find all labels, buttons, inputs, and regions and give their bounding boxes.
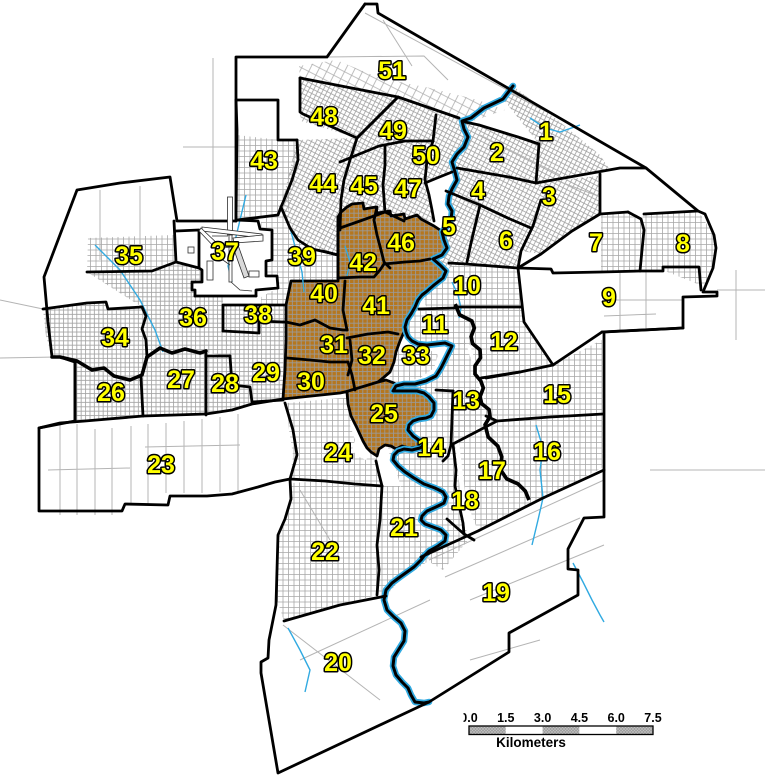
- svg-text:17: 17: [478, 457, 506, 485]
- svg-text:9: 9: [602, 284, 616, 312]
- svg-text:38: 38: [244, 301, 272, 329]
- svg-text:27: 27: [167, 366, 195, 394]
- svg-text:24: 24: [324, 439, 352, 467]
- svg-text:35: 35: [115, 242, 143, 270]
- svg-text:40: 40: [310, 280, 338, 308]
- svg-text:6.0: 6.0: [608, 711, 625, 725]
- svg-text:7.5: 7.5: [644, 711, 661, 725]
- svg-text:4.5: 4.5: [571, 711, 588, 725]
- svg-text:13: 13: [452, 387, 480, 415]
- svg-text:15: 15: [543, 381, 571, 409]
- svg-text:5: 5: [442, 213, 456, 241]
- svg-text:20: 20: [324, 649, 352, 677]
- svg-text:4: 4: [471, 177, 485, 205]
- svg-text:43: 43: [250, 147, 278, 175]
- svg-text:26: 26: [97, 379, 125, 407]
- svg-text:49: 49: [379, 117, 407, 145]
- svg-text:10: 10: [453, 272, 481, 300]
- svg-text:46: 46: [387, 229, 415, 257]
- svg-text:36: 36: [179, 304, 207, 332]
- svg-text:8: 8: [676, 230, 690, 258]
- svg-text:28: 28: [211, 370, 239, 398]
- svg-text:51: 51: [378, 57, 406, 85]
- svg-text:2: 2: [490, 139, 504, 167]
- svg-text:6: 6: [499, 227, 513, 255]
- svg-text:30: 30: [297, 368, 325, 396]
- svg-text:42: 42: [349, 249, 377, 277]
- svg-text:14: 14: [417, 434, 445, 462]
- svg-text:1.5: 1.5: [497, 711, 514, 725]
- svg-text:45: 45: [350, 172, 378, 200]
- svg-text:29: 29: [252, 359, 280, 387]
- svg-text:21: 21: [390, 514, 418, 542]
- svg-text:33: 33: [402, 342, 430, 370]
- svg-text:7: 7: [589, 229, 603, 257]
- svg-text:23: 23: [147, 451, 175, 479]
- svg-text:11: 11: [422, 311, 449, 339]
- svg-text:16: 16: [533, 438, 561, 466]
- svg-text:44: 44: [309, 170, 337, 198]
- svg-text:50: 50: [412, 142, 440, 170]
- svg-text:19: 19: [482, 579, 510, 607]
- svg-text:34: 34: [101, 324, 129, 352]
- svg-text:48: 48: [310, 103, 338, 131]
- svg-text:Kilometers: Kilometers: [496, 735, 566, 750]
- svg-text:3: 3: [542, 183, 556, 211]
- svg-text:37: 37: [211, 238, 239, 266]
- svg-text:41: 41: [362, 292, 390, 320]
- svg-text:47: 47: [394, 175, 422, 203]
- svg-text:25: 25: [370, 400, 398, 428]
- svg-text:22: 22: [311, 538, 339, 566]
- svg-text:32: 32: [358, 342, 386, 370]
- svg-text:39: 39: [288, 243, 316, 271]
- svg-text:12: 12: [490, 328, 518, 356]
- svg-text:18: 18: [451, 487, 479, 515]
- svg-text:31: 31: [320, 331, 348, 359]
- svg-text:3.0: 3.0: [534, 711, 551, 725]
- svg-text:1: 1: [539, 118, 553, 146]
